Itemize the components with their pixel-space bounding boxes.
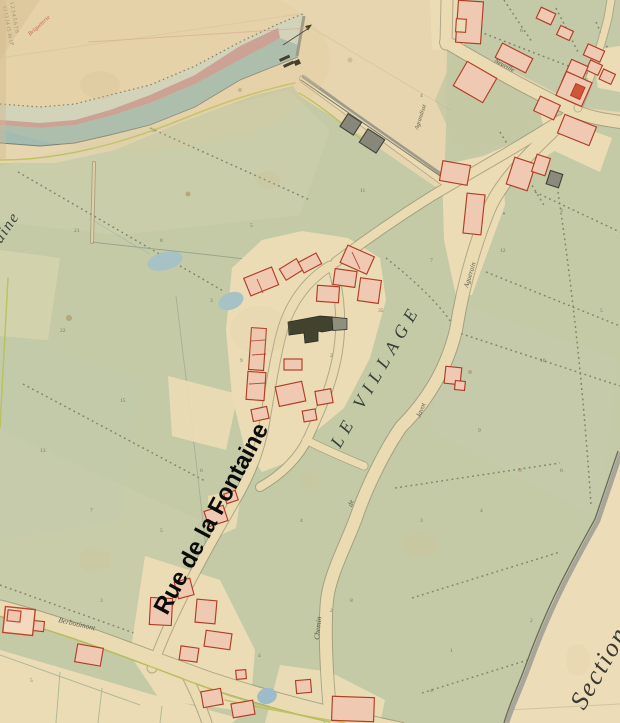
svg-text:7: 7 [585,78,588,84]
svg-text:10: 10 [540,358,546,364]
svg-text:9: 9 [240,358,243,364]
svg-text:3: 3 [210,298,213,304]
svg-text:13: 13 [40,448,46,454]
svg-text:4: 4 [480,508,483,514]
svg-text:5: 5 [600,308,603,314]
svg-text:6: 6 [520,28,523,34]
svg-text:8: 8 [160,238,163,244]
svg-text:5: 5 [30,678,33,684]
svg-text:7: 7 [430,258,433,264]
svg-text:5: 5 [160,528,163,534]
svg-text:22: 22 [60,328,66,334]
svg-text:6: 6 [560,468,563,474]
svg-text:2: 2 [530,618,533,624]
svg-text:5: 5 [250,223,253,229]
svg-text:21: 21 [74,228,80,234]
svg-text:6: 6 [200,468,203,474]
svg-text:4: 4 [300,518,303,524]
svg-text:1: 1 [450,648,453,654]
svg-text:8: 8 [350,598,353,604]
svg-text:9: 9 [478,428,481,434]
svg-text:7: 7 [90,508,93,514]
svg-text:12: 12 [500,248,506,254]
svg-text:3: 3 [420,518,423,524]
svg-text:2: 2 [330,608,333,614]
svg-text:15: 15 [120,398,126,404]
svg-text:3: 3 [560,208,563,214]
svg-text:2: 2 [330,353,333,359]
svg-text:4: 4 [430,688,433,694]
svg-text:11: 11 [360,188,366,194]
svg-text:4: 4 [420,93,423,99]
svg-text:3: 3 [100,598,103,604]
svg-text:4: 4 [258,653,261,659]
svg-text:35: 35 [378,308,384,314]
